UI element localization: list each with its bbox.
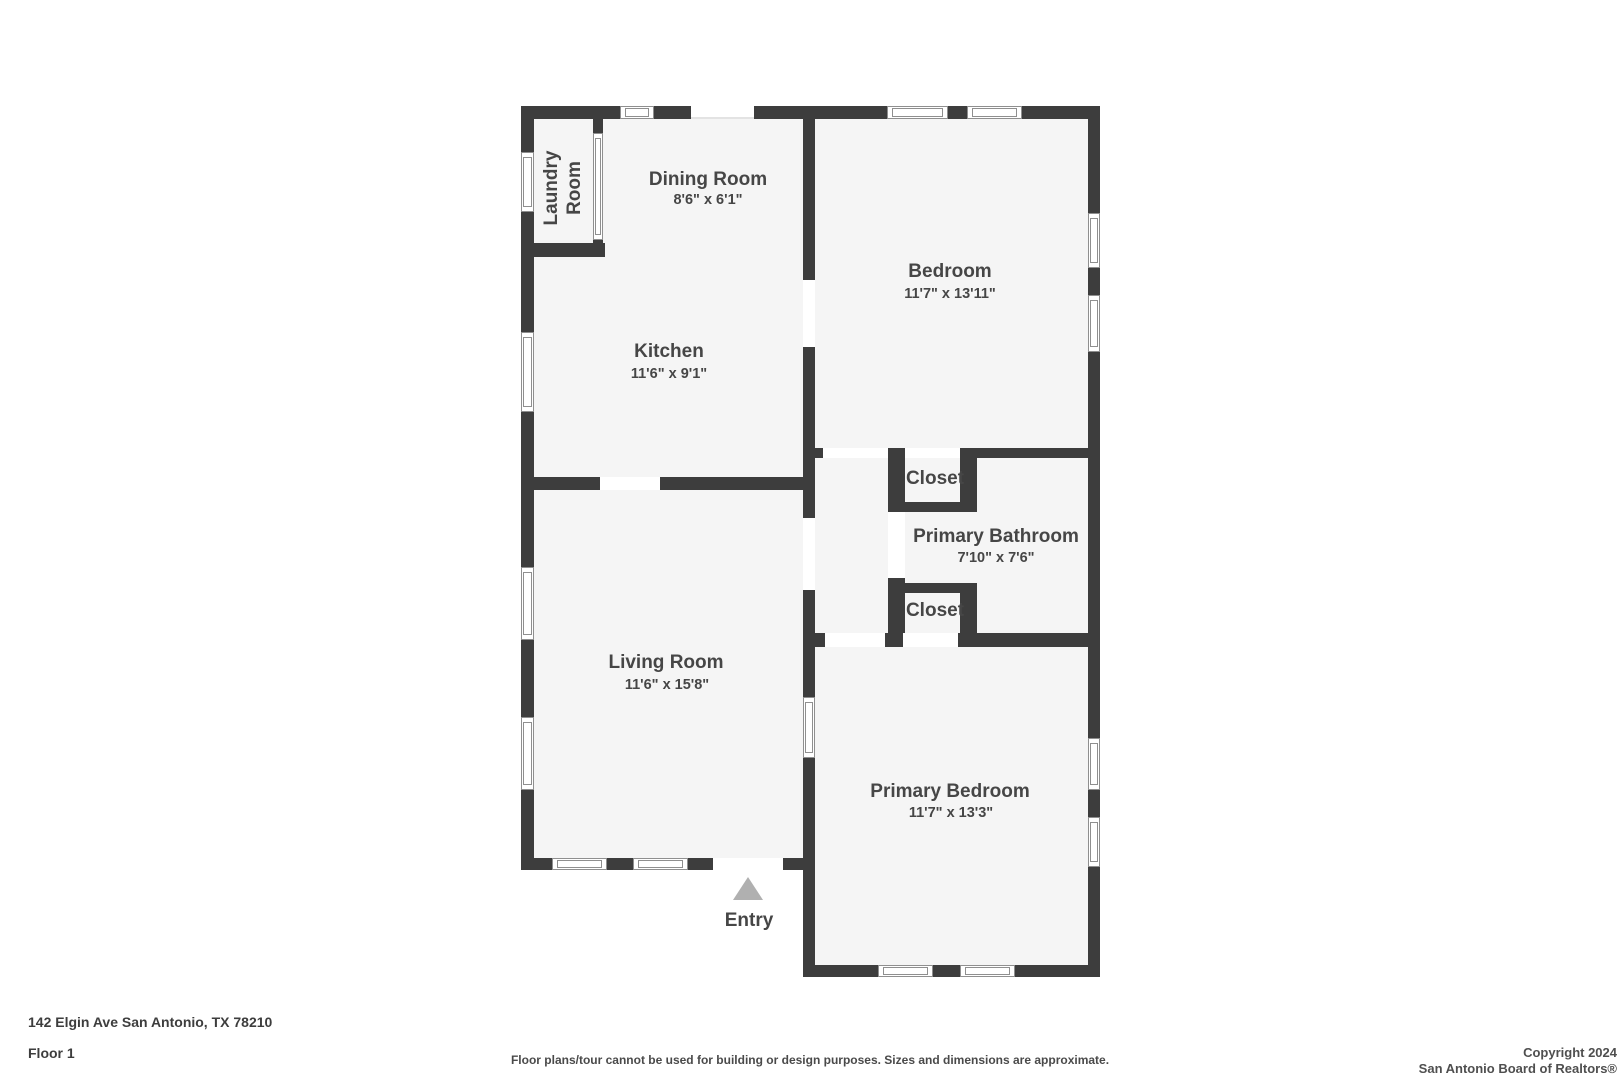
window-living-left-2 (521, 717, 534, 790)
window-primary-right-1 (1088, 738, 1100, 790)
wall-kitchen-living (521, 477, 815, 490)
opening-dining-top (691, 106, 754, 119)
window-dining-top (620, 106, 654, 119)
floor-plan-page: Laundry Room Dining Room 8'6" x 6'1" Kit… (0, 0, 1620, 1080)
door-entry (713, 858, 783, 870)
door-closet-bottom (903, 633, 958, 647)
door-laundry-slider (593, 133, 603, 240)
copyright-line-1: Copyright 2024 (1419, 1045, 1617, 1061)
window-bedroom-top-2 (967, 106, 1022, 119)
copyright-line-2: San Antonio Board of Realtors® (1419, 1061, 1617, 1077)
disclaimer-text: Floor plans/tour cannot be used for buil… (0, 1053, 1620, 1067)
room-label-closet-top: Closet (906, 468, 964, 490)
window-bedroom-right-2 (1088, 295, 1100, 352)
entry-arrow-icon (733, 877, 763, 900)
room-label-kitchen: Kitchen (634, 341, 704, 363)
room-dims-primary-bedroom: 11'7" x 13'3" (909, 805, 993, 821)
door-closet-top (905, 448, 960, 458)
room-dims-kitchen: 11'6" x 9'1" (631, 366, 707, 382)
room-dims-dining: 8'6" x 6'1" (673, 192, 742, 208)
door-primary-bedroom (825, 633, 885, 647)
room-label-living: Living Room (608, 652, 723, 674)
address-text: 142 Elgin Ave San Antonio, TX 78210 (28, 1014, 272, 1030)
opening-living-hall (803, 518, 815, 590)
copyright-text: Copyright 2024 San Antonio Board of Real… (1419, 1045, 1617, 1077)
door-bathroom (888, 512, 905, 578)
door-living-primary (803, 697, 815, 758)
window-living-bottom-1 (552, 858, 607, 870)
window-primary-right-2 (1088, 817, 1100, 867)
room-label-closet-bottom: Closet (906, 600, 964, 622)
room-label-bathroom: Primary Bathroom (913, 526, 1079, 548)
room-dims-living: 11'6" x 15'8" (625, 677, 709, 693)
door-bedroom (803, 280, 815, 347)
wall-laundry-bottom (521, 243, 605, 257)
window-laundry-left (521, 152, 534, 212)
wall-closet-top-bottom (888, 502, 977, 512)
room-label-bedroom: Bedroom (908, 261, 991, 283)
window-living-left-1 (521, 567, 534, 640)
room-dims-bedroom: 11'7" x 13'11" (904, 286, 996, 302)
room-label-dining: Dining Room (649, 169, 767, 191)
entry-label: Entry (725, 910, 774, 932)
door-bedroom-hall (823, 448, 888, 458)
window-primary-bottom-1 (878, 965, 933, 977)
room-label-laundry: Laundry Room (540, 142, 586, 234)
window-bedroom-right-1 (1088, 213, 1100, 268)
opening-kitchen-living (600, 477, 660, 490)
room-label-primary-bedroom: Primary Bedroom (870, 781, 1029, 803)
window-bedroom-top-1 (887, 106, 948, 119)
room-dims-bathroom: 7'10" x 7'6" (957, 550, 1034, 566)
floor-plan: Laundry Room Dining Room 8'6" x 6'1" Kit… (521, 106, 1100, 977)
window-kitchen-left (521, 332, 534, 412)
window-living-bottom-2 (633, 858, 688, 870)
window-primary-bottom-2 (960, 965, 1015, 977)
wall-primary-bottom (803, 965, 1100, 977)
